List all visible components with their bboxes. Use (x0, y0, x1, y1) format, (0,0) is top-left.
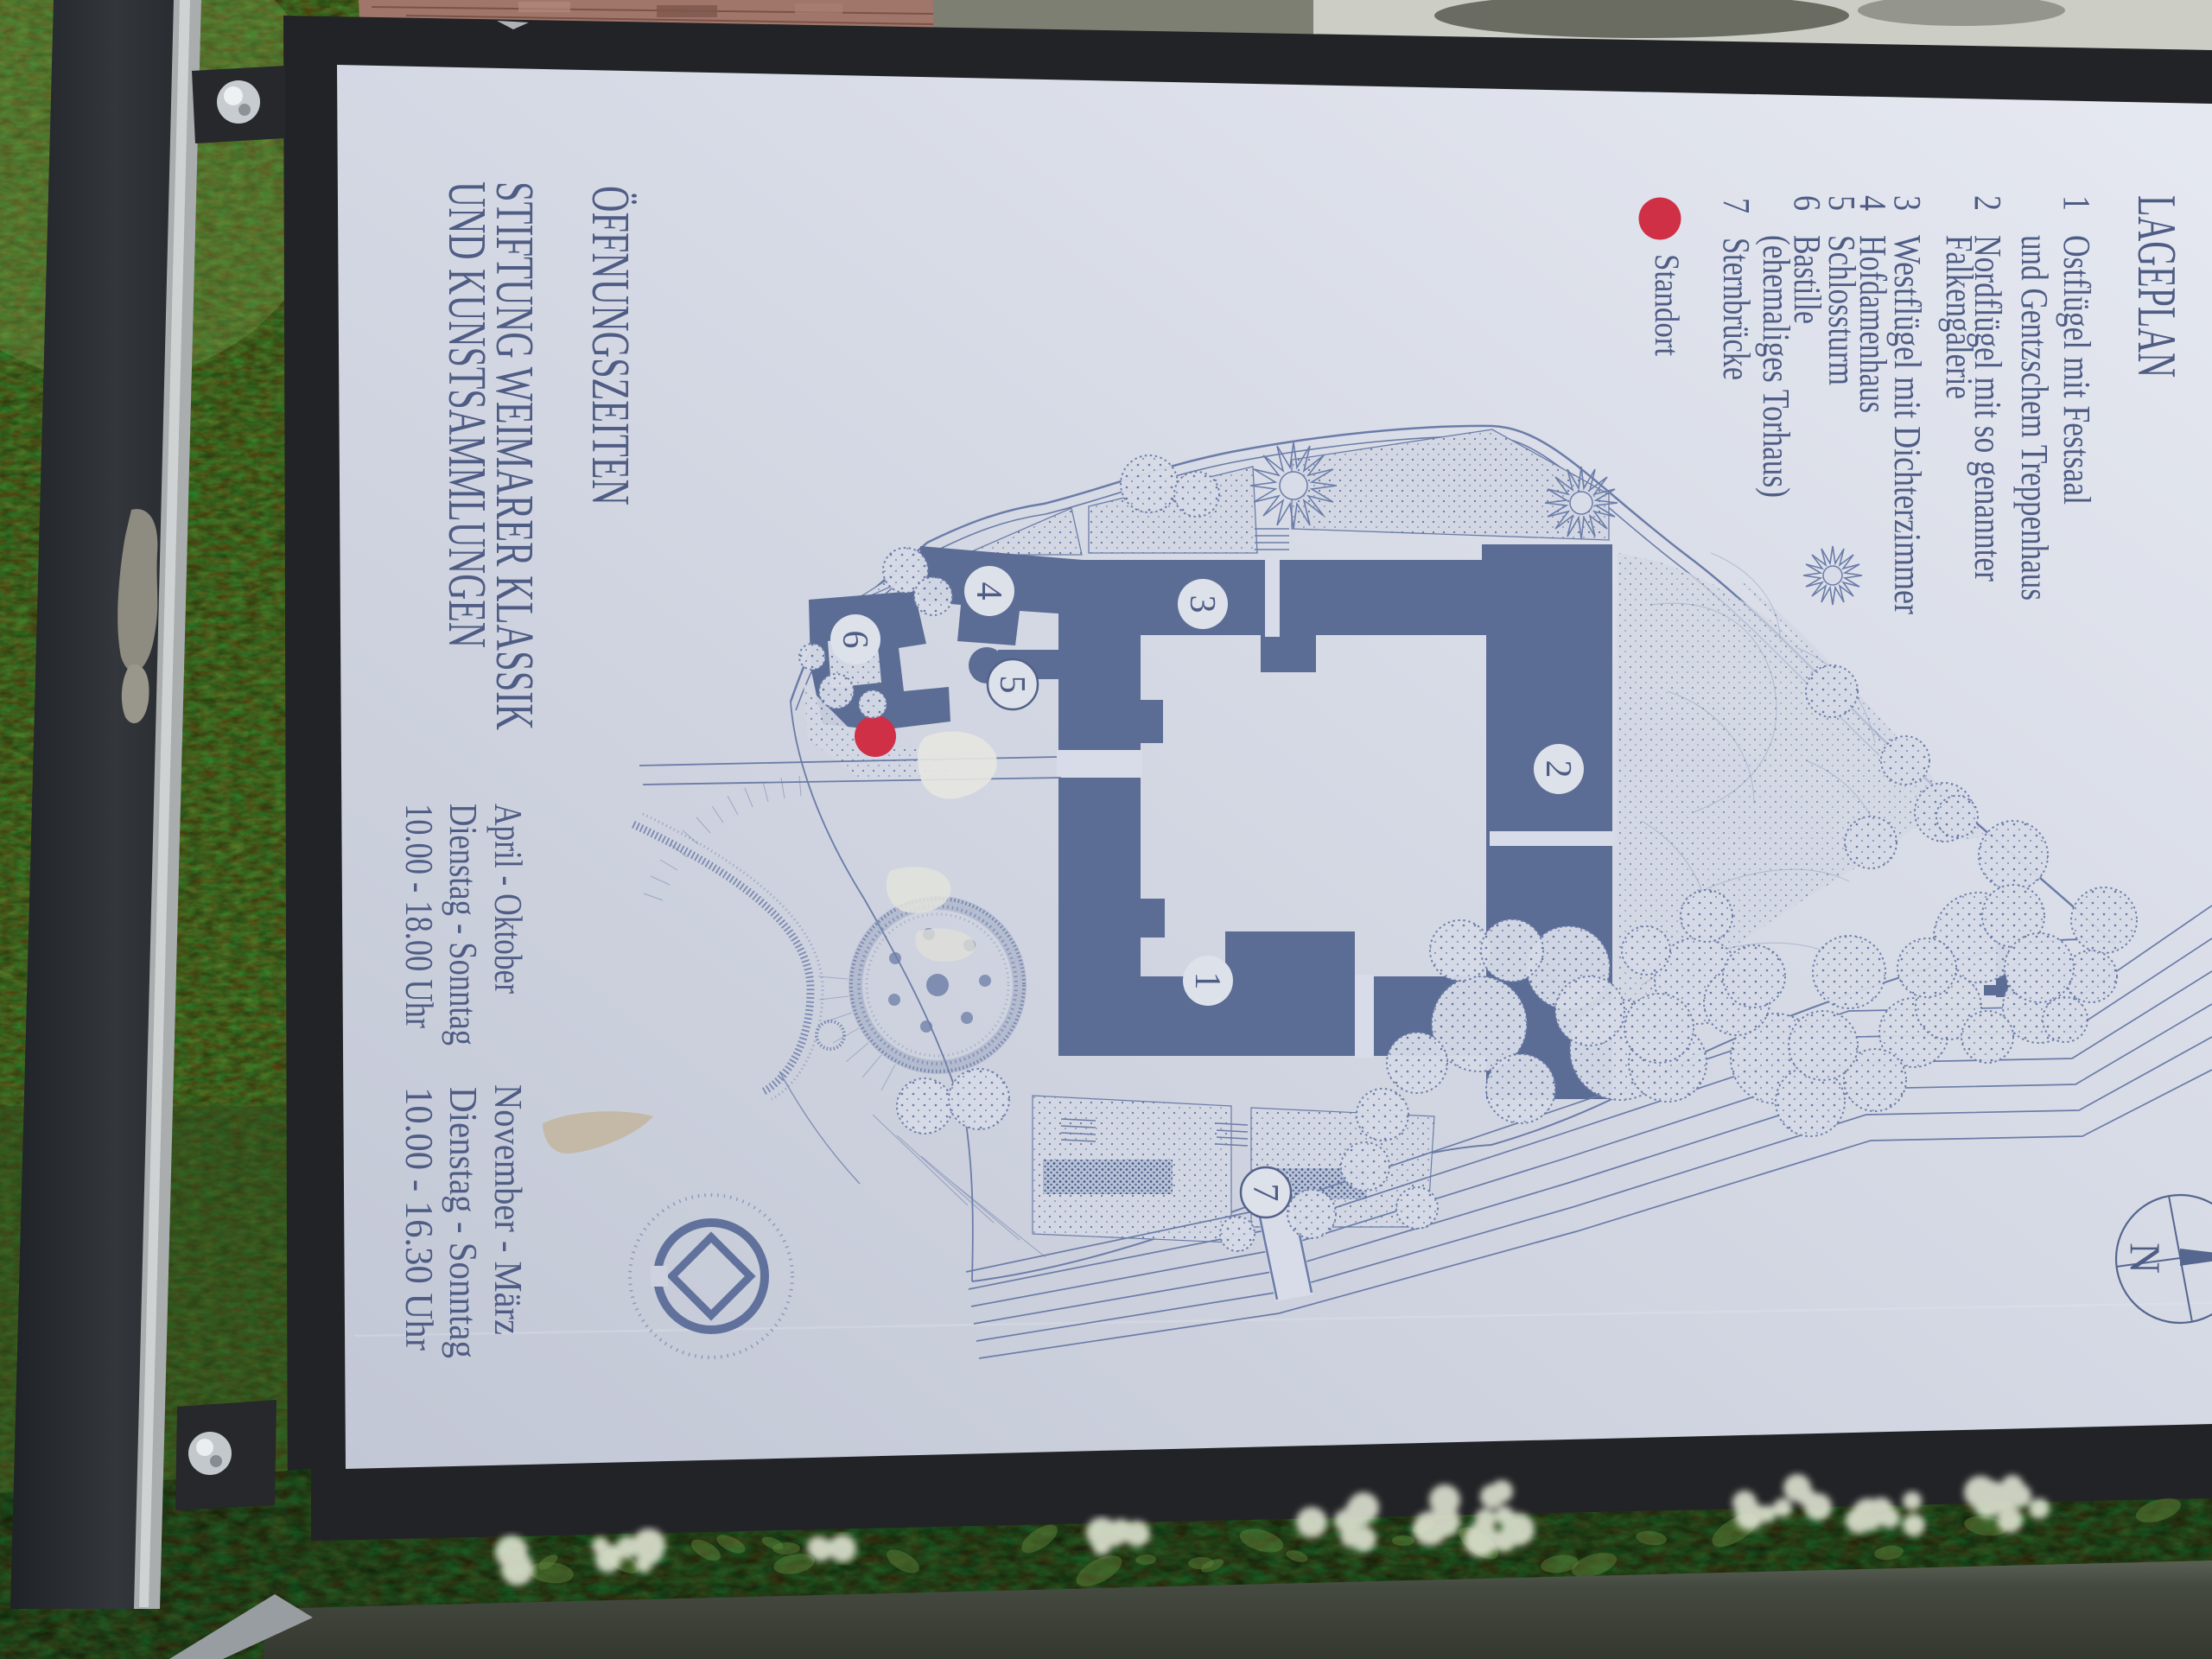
svg-text:Dienstag - Sonntag: Dienstag - Sonntag (442, 804, 486, 1046)
svg-text:4: 4 (969, 582, 1008, 601)
svg-text:und Gentzschem Treppenhaus: und Gentzschem Treppenhaus (2013, 235, 2056, 601)
svg-text:1: 1 (2056, 195, 2098, 211)
svg-text:10.00 - 18.00 Uhr: 10.00 - 18.00 Uhr (397, 804, 442, 1028)
svg-text:7: 7 (1245, 1184, 1285, 1202)
svg-text:1: 1 (1187, 972, 1227, 990)
svg-text:UND KUNSTSAMMLUNGEN: UND KUNSTSAMMLUNGEN (437, 181, 496, 648)
svg-text:3: 3 (1182, 595, 1222, 613)
svg-text:November - März: November - März (486, 1084, 531, 1335)
svg-text:N: N (2121, 1243, 2170, 1274)
svg-text:10.00 - 16.30 Uhr: 10.00 - 16.30 Uhr (397, 1087, 442, 1351)
svg-text:April - Oktober: April - Oktober (486, 804, 531, 994)
svg-text:7: 7 (1715, 198, 1758, 213)
svg-text:LAGEPLAN: LAGEPLAN (2126, 195, 2188, 378)
svg-text:(ehemaliges Torhaus): (ehemaliges Torhaus) (1755, 235, 1797, 498)
svg-text:Falkengalerie: Falkengalerie (1938, 235, 1980, 399)
svg-text:ÖFFNUNGSZEITEN: ÖFFNUNGSZEITEN (581, 186, 639, 505)
svg-text:Dienstag - Sonntag: Dienstag - Sonntag (442, 1087, 486, 1358)
svg-text:Sternbrücke: Sternbrücke (1715, 238, 1758, 380)
svg-text:5: 5 (992, 676, 1032, 694)
svg-text:6: 6 (1786, 195, 1828, 211)
svg-text:Ostflügel mit Festsaal: Ostflügel mit Festsaal (2056, 235, 2098, 505)
svg-text:Standort: Standort (1648, 254, 1687, 356)
svg-text:2: 2 (1967, 195, 2009, 211)
svg-text:2: 2 (1538, 760, 1578, 779)
svg-text:6: 6 (835, 631, 874, 649)
